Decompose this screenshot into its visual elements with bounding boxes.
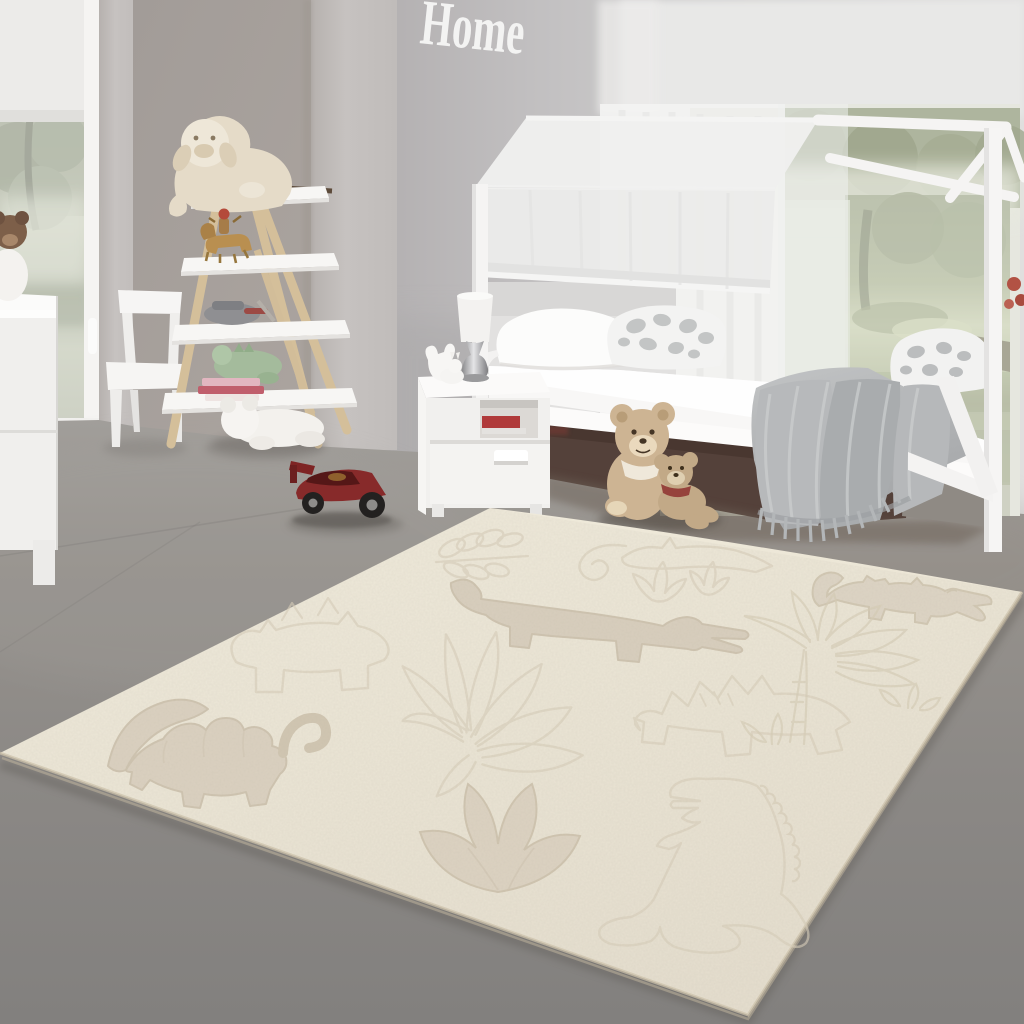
svg-text:Home: Home [418, 0, 529, 68]
